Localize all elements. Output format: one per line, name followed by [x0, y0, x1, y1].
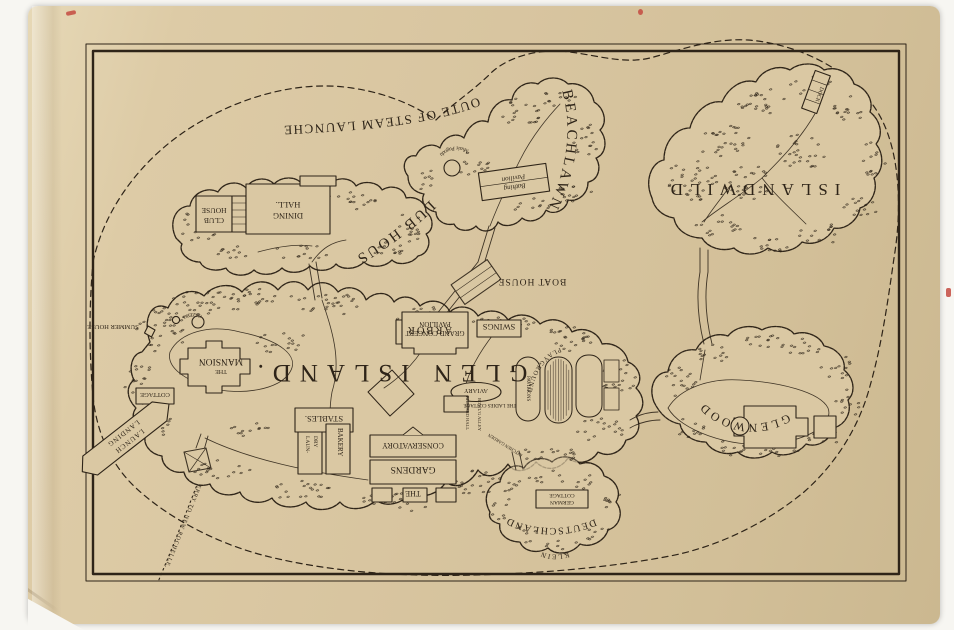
svg-text:GARDENS: GARDENS: [391, 464, 436, 474]
ladies-cottage-label: THE LADIES COTTAGE: [464, 402, 517, 407]
scanned-postcard-photo: ROUTE OF STEAM LAUNCHES FERRY TO NEW ROC…: [0, 0, 954, 630]
swings-label: SWINGS: [482, 322, 515, 332]
svg-text:DRY: DRY: [312, 436, 318, 447]
route-of-steam-launches-label: ROUTE OF STEAM LAUNCHES: [0, 0, 482, 138]
svg-text:CLUB: CLUB: [204, 216, 224, 225]
bakery-label: BAKERY: [336, 428, 344, 456]
billiard-hall-label: BILLIARD HALL: [465, 396, 470, 430]
music-pagoda-structure: [444, 160, 460, 176]
bowling-alley-label: BOWL'G ALLEY: [477, 398, 482, 432]
german-cottage-label: GERMAN COTTAGE: [549, 492, 575, 505]
islandwild-title: ISLANDWILD: [664, 180, 841, 199]
svg-text:HOUSE: HOUSE: [201, 206, 226, 215]
dining-hall-label: DINING HALL.: [273, 200, 303, 221]
engraved-map: ROUTE OF STEAM LAUNCHES FERRY TO NEW ROC…: [0, 0, 954, 630]
island-shorelines: [128, 64, 882, 553]
boat-house-label: BOAT HOUSE: [498, 276, 567, 286]
bathing-pavilion-label: Bathing Pavilion: [501, 172, 528, 192]
mansion-building: [180, 341, 250, 393]
cottage-label: COTTAGE: [140, 391, 170, 398]
svg-text:GERMAN: GERMAN: [550, 499, 574, 505]
conservatory-label: CONSERVATORY: [382, 441, 444, 450]
svg-text:COTTAGE: COTTAGE: [549, 492, 575, 498]
stables-label: STABLES.: [305, 414, 343, 424]
gazebo-structure: [192, 316, 204, 328]
summer-house-label: SUMMER HOUSE: [87, 323, 138, 330]
svg-text:LAUN-: LAUN-: [304, 436, 310, 453]
svg-text:THE: THE: [215, 368, 227, 374]
arbor-label: ARBOR: [406, 324, 452, 335]
svg-text:MANSION: MANSION: [199, 356, 243, 366]
svg-text:THE: THE: [405, 489, 421, 498]
club-house-label: CLUB HOUSE: [201, 206, 226, 225]
route-of-steam-launches-text: ROUTE OF STEAM LAUNCHES: [0, 0, 482, 138]
svg-text:DINING: DINING: [273, 211, 303, 221]
glen-island-title: GLEN ISLAND.: [249, 359, 528, 386]
ferry-label: FERRY TO NEW ROCHELLE.: [163, 480, 203, 570]
svg-text:HALL.: HALL.: [276, 200, 301, 210]
aviary-label: AVIARY: [464, 387, 488, 394]
